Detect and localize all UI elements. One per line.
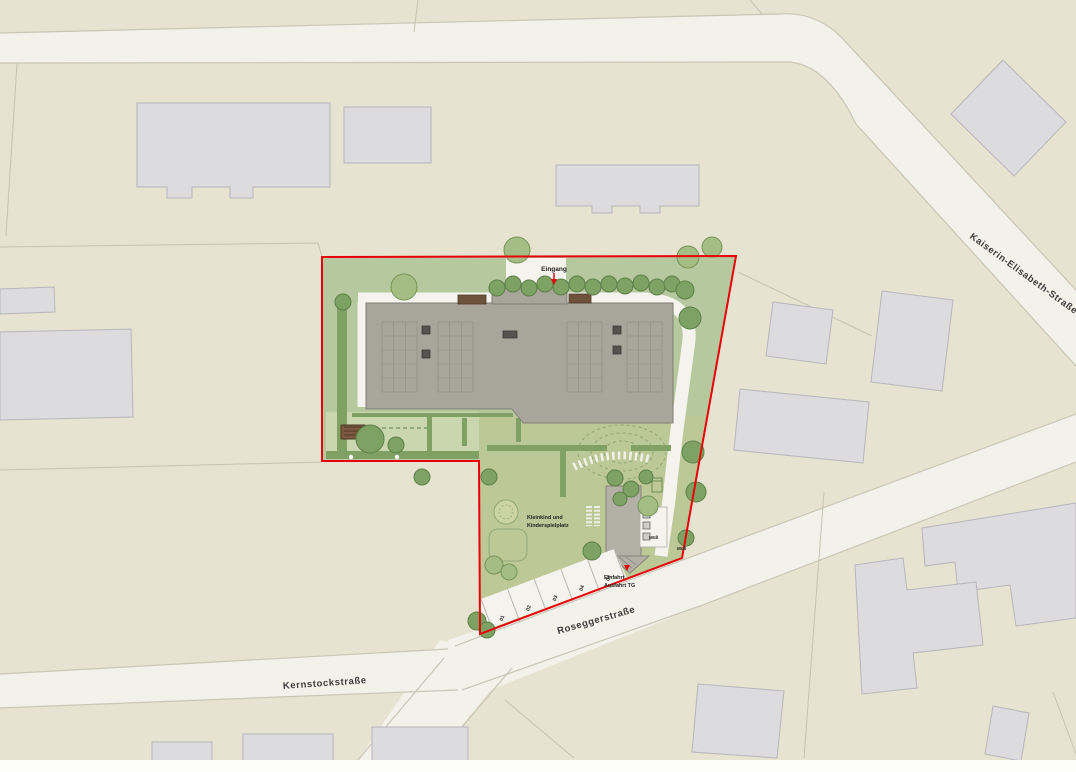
bottom-margin — [0, 760, 1076, 772]
tree-icon — [501, 564, 517, 580]
hedge — [487, 445, 607, 451]
main-building — [366, 284, 673, 423]
hedge — [560, 445, 566, 497]
building-footprint — [0, 287, 55, 314]
building-footprint — [0, 329, 133, 420]
sand-circle — [494, 500, 518, 524]
roof-vent — [503, 331, 517, 338]
site-plan: 01 02 03 04 05 — [0, 0, 1076, 772]
tree-icon — [391, 274, 417, 300]
hedge — [427, 416, 432, 454]
tree-icon — [388, 437, 404, 453]
building-footprint — [766, 302, 833, 364]
tree-icon — [613, 492, 627, 506]
tree-icon — [504, 237, 530, 263]
hedge — [352, 413, 513, 417]
tree-icon — [639, 470, 653, 484]
roof-equipment — [613, 326, 621, 334]
building-footprint — [985, 706, 1029, 761]
tree-icon — [702, 237, 722, 257]
hedge — [462, 418, 467, 446]
building-footprint — [734, 389, 869, 463]
building-footprint — [243, 734, 333, 762]
tree-icon — [414, 469, 430, 485]
building-footprint — [871, 291, 953, 391]
playground-label: Kleinkind und — [527, 515, 563, 521]
bench-icon — [458, 295, 486, 304]
hedge — [326, 451, 479, 459]
playground-label: Kinderspielplatz — [527, 523, 569, 529]
building-footprint — [152, 742, 212, 762]
tree-icon — [356, 425, 384, 453]
building-footprint — [344, 107, 431, 163]
roof-equipment — [422, 326, 430, 334]
building-footprint — [372, 727, 468, 762]
building-footprint — [556, 165, 699, 213]
waste-label-street: Müll — [677, 546, 686, 551]
roof-equipment — [422, 350, 430, 358]
waste-label: Müll — [649, 535, 658, 540]
hedge — [516, 418, 521, 442]
building-footprint — [137, 103, 330, 198]
tree-icon — [607, 470, 623, 486]
tree-icon — [485, 556, 503, 574]
tree-icon — [679, 307, 701, 329]
tree-icon — [335, 294, 351, 310]
tree-icon — [481, 469, 497, 485]
entrance-label: Eingang — [541, 266, 567, 273]
bench-icon — [569, 294, 591, 303]
site-plan-svg: 01 02 03 04 05 — [0, 0, 1076, 772]
tree-icon — [583, 542, 601, 560]
garage-label: Einfahrt — [604, 575, 625, 581]
building-footprint — [692, 684, 784, 758]
tree-icon — [638, 496, 658, 516]
garage-label: Ausfahrt TG — [604, 583, 635, 589]
roof-equipment — [613, 346, 621, 354]
